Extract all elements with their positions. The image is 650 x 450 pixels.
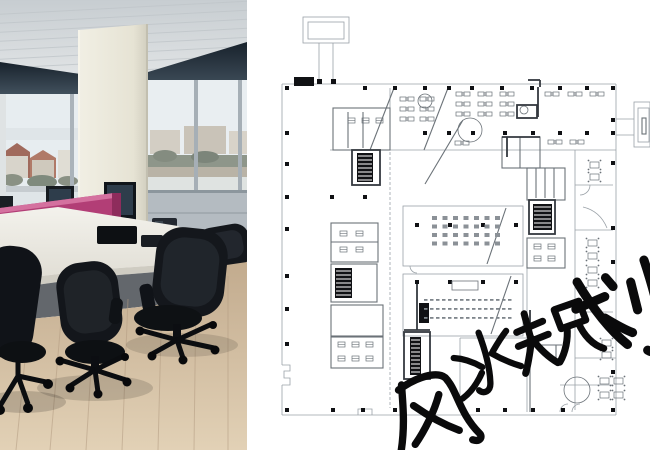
seat-icon	[460, 317, 464, 319]
column-icon	[514, 223, 518, 227]
seat-icon	[495, 216, 500, 220]
seat-icon	[484, 299, 488, 301]
table-icon	[614, 392, 623, 398]
seat-icon	[502, 299, 506, 301]
column-icon	[285, 307, 289, 311]
column-icon	[531, 408, 535, 412]
seat-icon	[430, 317, 434, 319]
seat-icon	[485, 216, 490, 220]
column-icon	[285, 227, 289, 231]
seat-icon	[485, 242, 490, 246]
seat-icon	[448, 317, 452, 319]
column-icon	[503, 131, 507, 135]
seat-icon	[436, 308, 440, 310]
seat-icon	[502, 317, 506, 319]
table-icon	[588, 280, 597, 286]
table-icon	[600, 378, 609, 384]
column-icon	[503, 408, 507, 412]
seat-icon	[495, 233, 500, 237]
window-mullion	[238, 80, 242, 190]
column-icon	[470, 86, 474, 90]
table-icon	[588, 253, 597, 259]
seat-icon	[432, 242, 437, 246]
column-icon	[285, 86, 289, 90]
seat-icon	[432, 225, 437, 229]
column-icon	[611, 370, 615, 374]
seat-icon	[460, 308, 464, 310]
seat-icon	[453, 216, 458, 220]
column-icon	[331, 408, 335, 412]
column-icon	[448, 280, 452, 284]
seat-icon	[490, 299, 494, 301]
window-mullion	[194, 80, 198, 190]
column-icon	[448, 223, 452, 227]
plan-desks	[338, 92, 625, 400]
seat-icon	[464, 233, 469, 237]
seat-icon	[474, 242, 479, 246]
seat-icon	[490, 317, 494, 319]
seat-icon	[490, 308, 494, 310]
seat-icon	[478, 317, 482, 319]
seat-icon	[442, 299, 446, 301]
seat-icon	[472, 299, 476, 301]
seat-icon	[466, 317, 470, 319]
column-icon	[481, 223, 485, 227]
seat-icon	[474, 216, 479, 220]
column-icon	[530, 86, 534, 90]
seat-icon	[508, 299, 512, 301]
seat-icon	[495, 242, 500, 246]
column-icon	[285, 342, 289, 346]
column-icon	[558, 131, 562, 135]
column-icon	[558, 86, 562, 90]
seat-icon	[474, 225, 479, 229]
composite-image	[0, 0, 650, 450]
column-icon	[611, 161, 615, 165]
seat-icon	[430, 299, 434, 301]
column-icon	[611, 260, 615, 264]
column-icon	[363, 86, 367, 90]
column-icon	[363, 195, 367, 199]
column-icon	[611, 86, 615, 90]
seat-icon	[442, 317, 446, 319]
seat-icon	[472, 308, 476, 310]
seat-icon	[478, 299, 482, 301]
seat-icon	[453, 242, 458, 246]
column-icon	[611, 226, 615, 230]
column-icon	[423, 131, 427, 135]
seat-icon	[454, 308, 458, 310]
seat-icon	[472, 317, 476, 319]
column-icon	[500, 86, 504, 90]
column-icon	[393, 86, 397, 90]
seat-icon	[436, 317, 440, 319]
seat-icon	[502, 308, 506, 310]
watermark-calligraphy	[381, 260, 650, 450]
seat-icon	[508, 308, 512, 310]
column-icon	[285, 162, 289, 166]
column-icon	[423, 86, 427, 90]
seat-icon	[478, 308, 482, 310]
seat-icon	[448, 308, 452, 310]
seat-icon	[484, 308, 488, 310]
table-icon	[588, 267, 597, 273]
seat-icon	[464, 216, 469, 220]
column-icon	[561, 408, 565, 412]
watermark-char	[447, 324, 525, 398]
table-icon	[590, 162, 599, 168]
seat-icon	[460, 299, 464, 301]
seat-icon	[454, 299, 458, 301]
podium	[452, 281, 478, 290]
stairwell-icon	[533, 204, 552, 230]
column-icon	[611, 131, 615, 135]
seat-icon	[496, 317, 500, 319]
column-icon	[361, 408, 365, 412]
column-icon	[585, 86, 589, 90]
seat-icon	[466, 299, 470, 301]
table-icon	[614, 378, 623, 384]
seat-icon	[424, 299, 428, 301]
seat-icon	[443, 233, 448, 237]
seat-icon	[495, 225, 500, 229]
seat-icon	[485, 233, 490, 237]
seat-icon	[464, 225, 469, 229]
office-interior-photo	[0, 0, 247, 450]
column-icon	[514, 280, 518, 284]
seat-icon	[442, 308, 446, 310]
table-icon	[588, 240, 597, 246]
seat-icon	[453, 225, 458, 229]
seat-icon	[424, 308, 428, 310]
seat-icon	[464, 242, 469, 246]
table-icon	[600, 392, 609, 398]
window-right	[148, 80, 247, 190]
seat-icon	[474, 233, 479, 237]
seat-icon	[496, 308, 500, 310]
seat-icon	[443, 216, 448, 220]
column-icon	[585, 131, 589, 135]
seat-icon	[453, 233, 458, 237]
seat-icon	[496, 299, 500, 301]
seat-icon	[443, 225, 448, 229]
column-icon	[285, 408, 289, 412]
seat-icon	[432, 233, 437, 237]
seat-icon	[466, 308, 470, 310]
column-icon	[415, 280, 419, 284]
column-icon	[611, 408, 615, 412]
column-icon	[447, 86, 451, 90]
printer	[97, 226, 137, 244]
column-icon	[531, 131, 535, 135]
table-icon	[602, 352, 611, 358]
seat-icon	[443, 242, 448, 246]
column-icon	[285, 274, 289, 278]
seat-icon	[508, 317, 512, 319]
column-icon	[393, 408, 397, 412]
seat-icon	[485, 225, 490, 229]
seat-icon	[448, 299, 452, 301]
column-icon	[330, 195, 334, 199]
column-icon	[476, 408, 480, 412]
seat-icon	[424, 317, 428, 319]
seat-icon	[436, 299, 440, 301]
seat-icon	[432, 216, 437, 220]
seat-icon	[430, 308, 434, 310]
seat-icon	[484, 317, 488, 319]
column-icon	[447, 131, 451, 135]
column-icon	[415, 223, 419, 227]
column-icon	[285, 195, 289, 199]
column-icon	[285, 131, 289, 135]
column-icon	[611, 118, 615, 122]
table-icon	[590, 174, 599, 180]
seat-icon	[454, 317, 458, 319]
column-icon	[471, 131, 475, 135]
column-icon	[481, 280, 485, 284]
